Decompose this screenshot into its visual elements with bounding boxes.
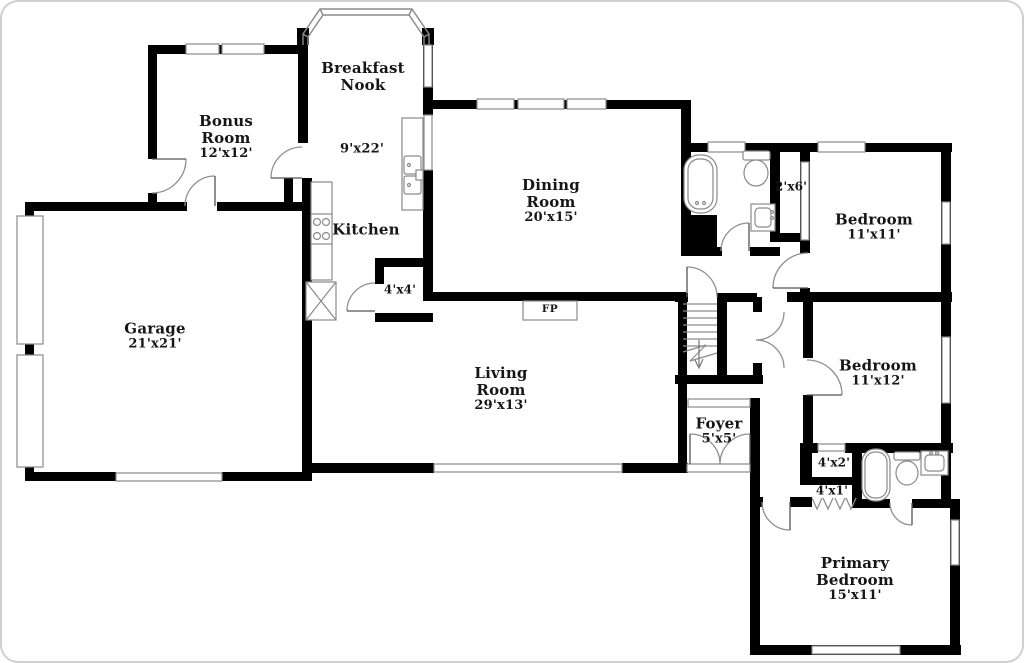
sink	[751, 204, 775, 231]
window	[222, 44, 264, 54]
window	[812, 646, 900, 654]
garage-door	[17, 216, 43, 344]
floor-plan: Breakfast Nook 9'x22' Bonus Room 12'x12'…	[0, 0, 1024, 663]
door-swing	[185, 176, 215, 206]
room-label-primary-bedroom: Primary Bedroom 15'x11'	[816, 555, 894, 603]
entry-threshold	[687, 464, 750, 472]
kitchen-sink	[402, 118, 423, 210]
wall-segment	[284, 178, 293, 211]
window	[951, 520, 959, 565]
wall-segment	[803, 395, 813, 443]
door-swing	[271, 147, 302, 178]
chimney-mass	[681, 215, 717, 255]
window	[942, 202, 950, 244]
toilet	[894, 452, 920, 485]
wall-segment	[423, 170, 433, 301]
toilet	[743, 151, 770, 186]
wall-segment	[750, 247, 780, 256]
sink	[921, 451, 948, 475]
closet-label-4x1: 4'x1'	[816, 484, 848, 497]
cased-opening	[688, 399, 750, 407]
wall-segment	[375, 258, 384, 284]
door-swing	[687, 267, 717, 297]
wall-segment	[148, 45, 157, 159]
window	[567, 99, 606, 109]
wall-segment	[217, 202, 312, 211]
room-label-bedroom-mid: Bedroom 11'x12'	[839, 357, 917, 388]
wall-segment	[25, 472, 116, 481]
door-swing	[773, 253, 808, 288]
garage-door	[17, 355, 43, 467]
sliding-door	[818, 444, 845, 451]
closet-label-4x2: 4'x2'	[818, 456, 850, 469]
window	[477, 99, 514, 109]
door-swing	[890, 503, 912, 525]
door-swing	[762, 502, 790, 530]
wall-segment	[750, 377, 760, 383]
wall-segment	[424, 292, 686, 301]
wall-segment	[148, 193, 157, 211]
room-label-kitchen: Kitchen	[332, 222, 400, 239]
wall-segment	[753, 363, 762, 377]
wall-segment	[25, 344, 34, 355]
stairs	[683, 304, 717, 368]
room-label-garage: Garage 21'x21'	[124, 320, 185, 351]
door-swing	[807, 360, 842, 395]
wall-segment	[717, 297, 727, 377]
bifold-door	[812, 498, 856, 509]
room-label-foyer: Foyer 5'x5'	[696, 415, 743, 446]
wall-segment	[222, 472, 312, 481]
window	[424, 115, 432, 170]
window	[801, 162, 809, 240]
hall-label-2x6: 2'x6'	[775, 180, 807, 193]
fireplace-label: FP	[542, 304, 558, 316]
door-swing	[347, 283, 375, 311]
room-label-bonus-room: Bonus Room 12'x12'	[199, 113, 253, 161]
window	[942, 337, 950, 403]
room-label-breakfast-nook: Breakfast Nook	[321, 60, 405, 94]
room-label-bedroom-top: Bedroom 11'x11'	[835, 211, 913, 242]
wall-segment	[800, 443, 812, 485]
room-label-dining-room: Dining Room 20'x15'	[522, 177, 580, 225]
wall-segment	[375, 313, 433, 322]
bay-window	[303, 9, 429, 45]
wall-segment	[803, 302, 813, 358]
wall-segment	[800, 288, 810, 301]
room-label-living-room: Living Room 29'x13'	[474, 365, 527, 413]
closet-double-door	[756, 312, 784, 368]
wall-segment	[310, 463, 434, 473]
window	[818, 142, 865, 152]
wall-segment	[750, 398, 760, 655]
wall-segment	[678, 293, 687, 473]
window	[434, 464, 622, 472]
bathtub	[684, 155, 717, 213]
room-dims-breakfast-nook: 9'x22'	[340, 143, 384, 158]
wall-segment	[298, 43, 308, 143]
door-swing	[152, 159, 186, 193]
wall-segment	[790, 497, 812, 507]
wall-segment	[25, 202, 34, 216]
wall-segment	[25, 202, 187, 211]
bathtub	[862, 449, 890, 501]
stove	[311, 214, 332, 244]
window	[424, 45, 432, 87]
door-swing	[721, 223, 749, 251]
wall-segment	[25, 467, 34, 481]
window	[116, 473, 222, 481]
window	[186, 44, 219, 54]
window	[518, 99, 564, 109]
wall-segment	[852, 445, 862, 507]
pantry-closet	[306, 282, 336, 320]
closet-label-4x4: 4'x4'	[384, 283, 416, 296]
wall-segment	[787, 292, 952, 302]
wall-segment	[753, 297, 762, 312]
window	[708, 142, 745, 152]
